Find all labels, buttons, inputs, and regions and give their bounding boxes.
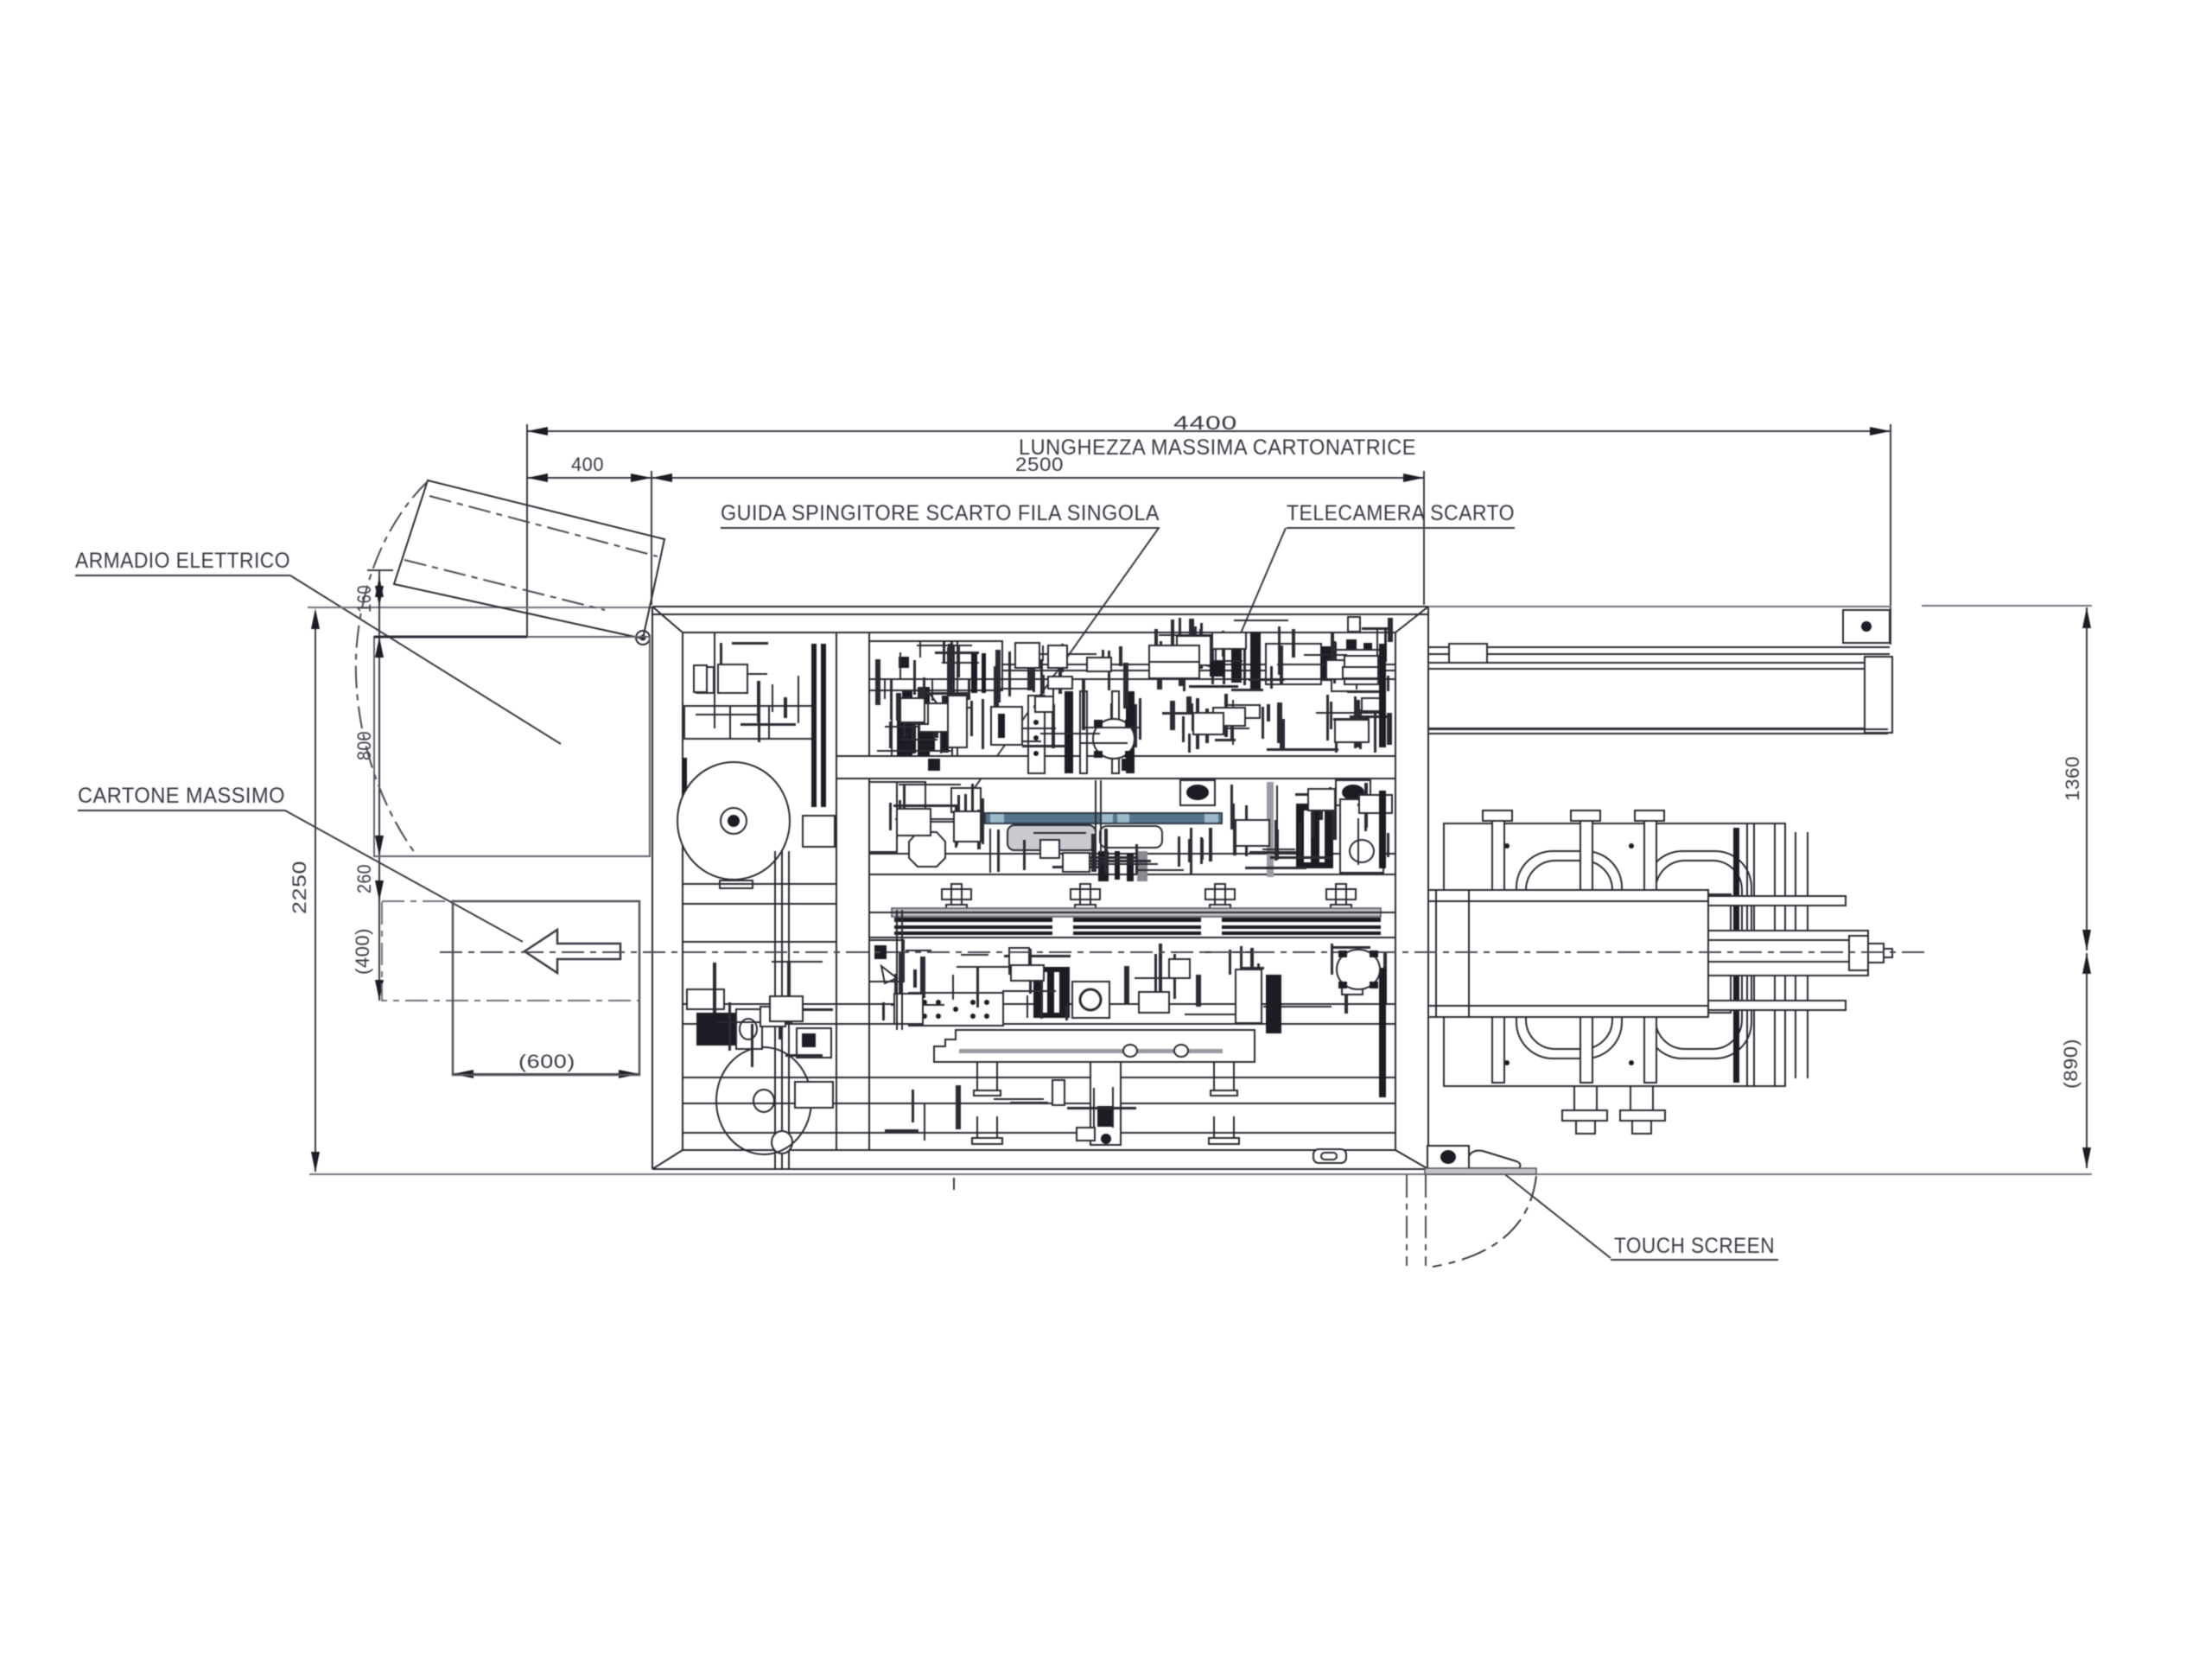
svg-text:(890): (890) — [2060, 1039, 2082, 1089]
svg-text:ARMADIO ELETTRICO: ARMADIO ELETTRICO — [75, 549, 290, 573]
svg-text:GUIDA SPINGITORE SCARTO FILA S: GUIDA SPINGITORE SCARTO FILA SINGOLA — [721, 501, 1160, 525]
svg-text:1360: 1360 — [2062, 756, 2083, 801]
svg-text:4400: 4400 — [1173, 412, 1237, 434]
svg-text:2250: 2250 — [289, 861, 310, 914]
svg-text:(400): (400) — [352, 928, 373, 975]
svg-text:(600): (600) — [518, 1051, 575, 1072]
svg-text:400: 400 — [571, 454, 604, 475]
svg-text:CARTONE MASSIMO: CARTONE MASSIMO — [78, 784, 285, 808]
svg-text:260: 260 — [353, 864, 375, 893]
svg-text:TOUCH SCREEN: TOUCH SCREEN — [1614, 1234, 1775, 1258]
svg-text:LUNGHEZZA MASSIMA CARTONATRICE: LUNGHEZZA MASSIMA CARTONATRICE — [1019, 435, 1416, 460]
svg-text:TELECAMERA SCARTO: TELECAMERA SCARTO — [1287, 501, 1515, 525]
svg-text:2500: 2500 — [1015, 454, 1064, 475]
